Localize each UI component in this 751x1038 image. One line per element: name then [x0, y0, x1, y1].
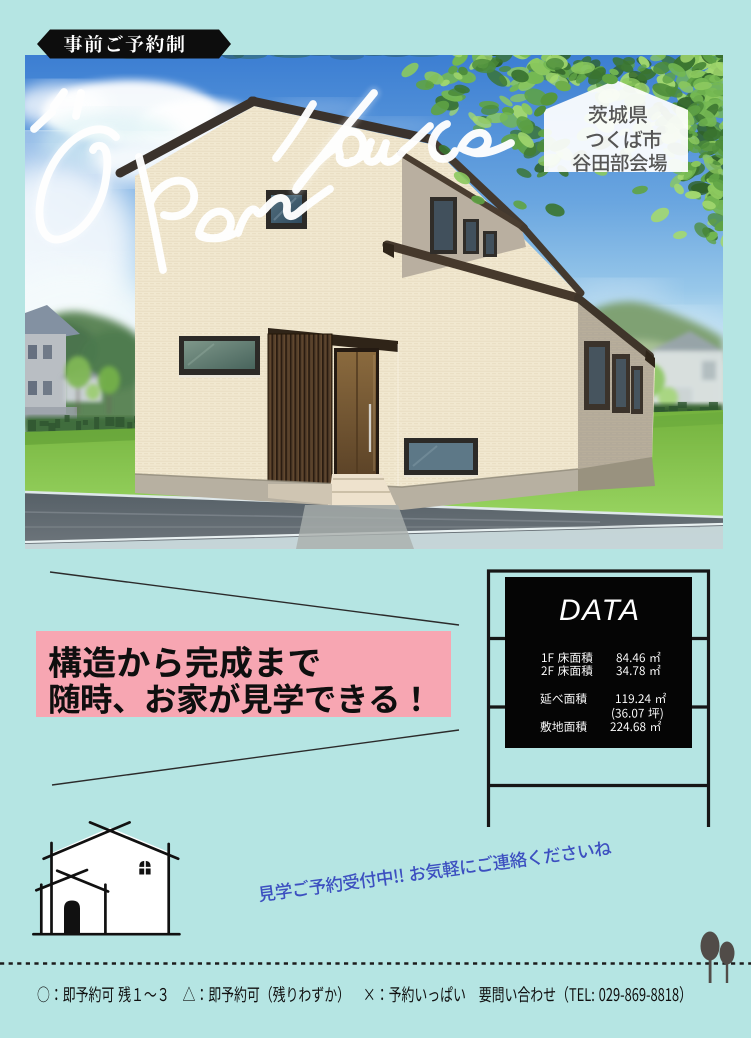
svg-text:DATA: DATA: [559, 594, 641, 627]
